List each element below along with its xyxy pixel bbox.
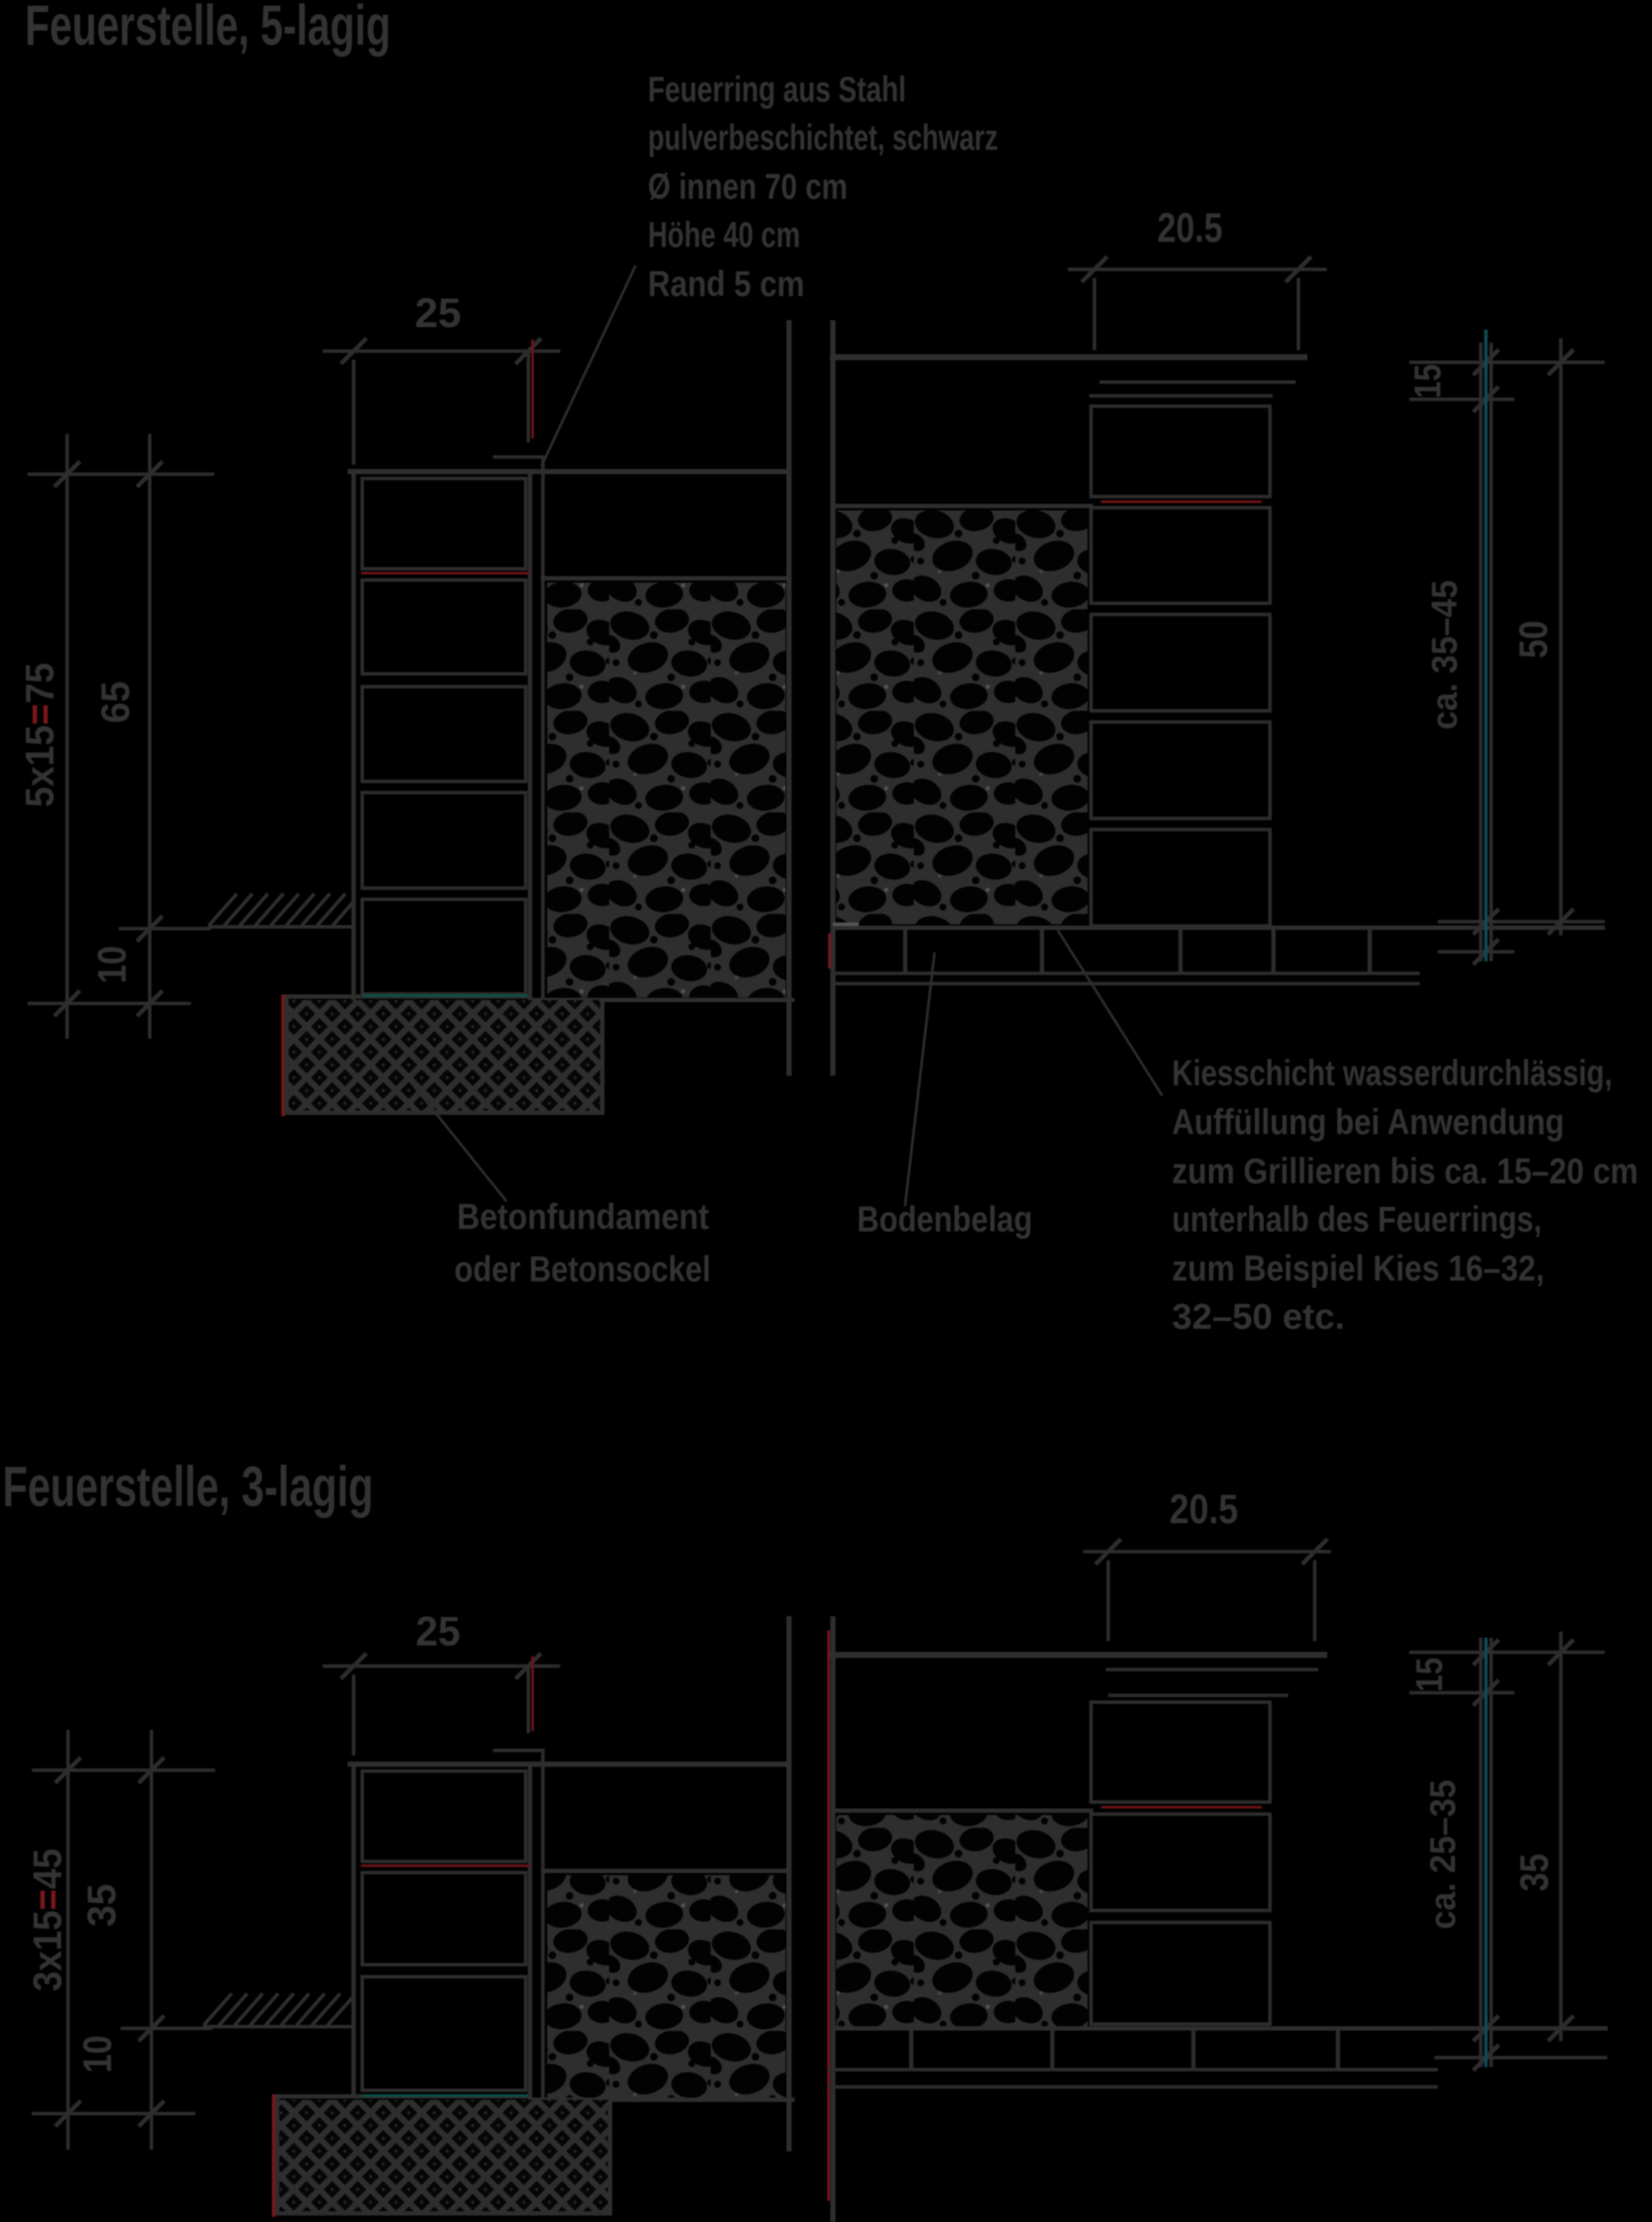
svg-text:Feuerring aus Stahl: Feuerring aus Stahl [648,69,906,109]
svg-text:15: 15 [1409,1657,1451,1692]
svg-text:65: 65 [93,682,138,724]
svg-text:Kiesschicht wasserdurchlässig,: Kiesschicht wasserdurchlässig, [1172,1052,1612,1093]
svg-text:35: 35 [79,1884,124,1927]
svg-text:15: 15 [1407,364,1449,398]
svg-text:Ø innen 70 cm: Ø innen 70 cm [648,166,848,207]
svg-text:25: 25 [416,1609,460,1655]
svg-text:Rand 5 cm: Rand 5 cm [648,263,804,304]
svg-text:unterhalb des Feuerrings,: unterhalb des Feuerrings, [1172,1199,1542,1239]
svg-text:3x15=45: 3x15=45 [25,1849,70,1991]
svg-text:Bodenbelag: Bodenbelag [857,1199,1032,1239]
svg-text:50: 50 [1511,620,1556,658]
svg-text:Auffüllung bei Anwendung: Auffüllung bei Anwendung [1172,1102,1564,1142]
svg-text:20.5: 20.5 [1157,206,1223,251]
svg-text:25: 25 [415,291,461,336]
svg-text:35: 35 [1512,1854,1556,1892]
svg-text:20.5: 20.5 [1169,1487,1238,1533]
svg-text:zum Grillieren bis ca. 15–20 c: zum Grillieren bis ca. 15–20 cm [1172,1151,1638,1191]
svg-text:zum Beispiel Kies 16–32,: zum Beispiel Kies 16–32, [1172,1248,1544,1288]
svg-text:pulverbeschichtet, schwarz: pulverbeschichtet, schwarz [648,117,998,157]
svg-text:Feuerstelle, 3-lagig: Feuerstelle, 3-lagig [3,1454,373,1518]
svg-text:Betonfundament: Betonfundament [457,1196,709,1237]
svg-text:10: 10 [75,2035,120,2073]
svg-text:32–50 etc.: 32–50 etc. [1172,1296,1345,1336]
svg-text:ca. 35–45: ca. 35–45 [1424,580,1464,730]
svg-text:ca. 25–35: ca. 25–35 [1422,1780,1463,1929]
svg-text:Feuerstelle, 5-lagig: Feuerstelle, 5-lagig [25,0,391,57]
svg-text:5x15=75: 5x15=75 [17,663,62,807]
svg-text:oder Betonsockel: oder Betonsockel [454,1249,711,1289]
svg-text:10: 10 [89,946,134,984]
svg-text:Höhe 40 cm: Höhe 40 cm [648,214,800,255]
